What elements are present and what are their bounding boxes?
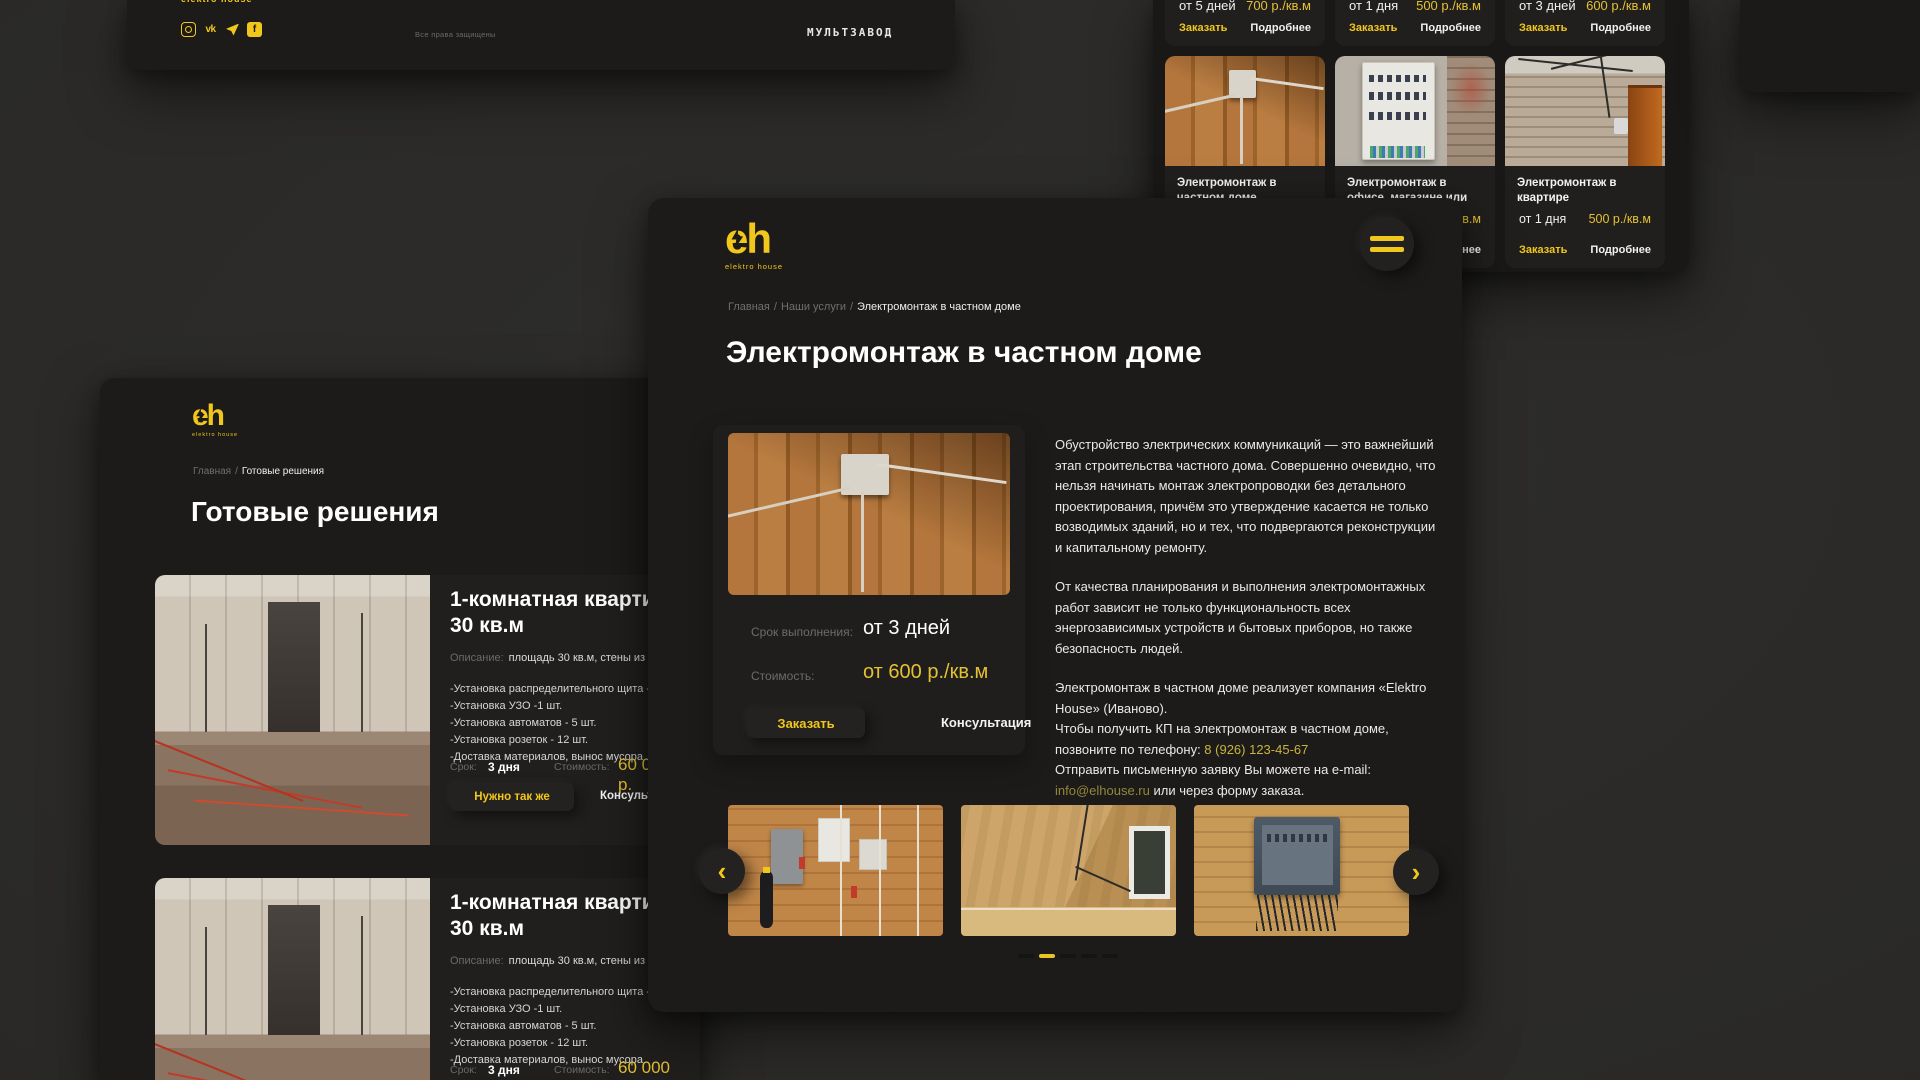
facebook-icon[interactable]: f xyxy=(247,22,262,37)
logo-mark: eh xyxy=(192,401,238,431)
breadcrumb: Главная/Готовые решения xyxy=(193,466,328,477)
consultation-button[interactable]: Консультация xyxy=(941,715,1031,730)
term-value: от 1 дня xyxy=(1519,212,1566,226)
wood-wall-equipment-photo[interactable] xyxy=(728,805,943,936)
solution-card: 1-комнатная квартира, 30 кв.м Описание:п… xyxy=(155,878,700,1080)
feature-item: -Установка распределительного щита - 1шт… xyxy=(450,984,675,1001)
breadcrumb: Главная/Наши услуги/Электромонтаж в част… xyxy=(728,301,1025,313)
breadcrumb-current: Готовые решения xyxy=(242,466,324,477)
price-label: Стоимость: xyxy=(554,1064,609,1076)
hamburger-menu-icon xyxy=(1370,236,1404,241)
logo-mark: eh xyxy=(725,218,783,260)
price-label: Стоимость: xyxy=(554,761,609,773)
price-value: 60 000 р. xyxy=(618,1058,680,1080)
carousel-dot[interactable] xyxy=(1018,954,1034,958)
price-value: 500 р./кв.м xyxy=(1416,0,1481,13)
logo-text: elektro house xyxy=(725,262,783,271)
carousel-dot[interactable] xyxy=(1102,954,1118,958)
page-title: Готовые решения xyxy=(191,496,439,528)
service-card: от 1 дня 500 р./кв.м Заказать Подробнее xyxy=(1335,0,1495,46)
feature-item: -Установка розеток - 12 шт. xyxy=(450,732,675,749)
order-button[interactable]: Заказать xyxy=(1519,244,1567,256)
term-value: 3 дня xyxy=(488,760,520,774)
lightning-bolt-icon xyxy=(195,408,206,423)
card-meta: Срок: 3 дня Стоимость: 60 000 р. xyxy=(450,1060,680,1080)
lightning-bolt-icon xyxy=(730,228,745,249)
breadcrumb-separator: / xyxy=(235,466,238,477)
description-label: Описание: xyxy=(450,955,504,967)
carousel-dot[interactable] xyxy=(1060,954,1076,958)
feature-list: -Установка распределительного щита - 1шт… xyxy=(450,681,675,766)
site-logo[interactable]: elektro house xyxy=(181,0,253,4)
service-page-frame: eh elektro house Главная/Наши услуги/Эле… xyxy=(648,198,1462,1012)
service-description: Обустройство электрических коммуникаций … xyxy=(1055,435,1437,821)
order-button[interactable]: Заказать xyxy=(1349,22,1397,34)
vk-icon[interactable]: vk xyxy=(203,22,218,37)
feature-list: -Установка распределительного щита - 1шт… xyxy=(450,984,675,1069)
email-link[interactable]: info@elhouse.ru xyxy=(1055,783,1150,798)
price-value: от 600 р./кв.м xyxy=(863,661,988,684)
carousel-dot[interactable] xyxy=(1081,954,1097,958)
copyright-text: Все права защищены xyxy=(415,30,496,39)
breadcrumb-root[interactable]: Главная xyxy=(193,466,231,477)
feature-item: -Установка УЗО -1 шт. xyxy=(450,1001,675,1018)
term-value: от 1 дня xyxy=(1349,0,1398,13)
service-card: Электромонтаж в квартире от 1 дня 500 р.… xyxy=(1505,56,1665,268)
more-button[interactable]: Подробнее xyxy=(1590,244,1651,256)
order-button[interactable]: Заказать xyxy=(747,708,865,738)
chevron-right-icon: › xyxy=(1412,859,1421,885)
footer-fragment-frame: elektro house vk f Все права защищены МУ… xyxy=(127,0,955,70)
price-value: 500 р./кв.м xyxy=(1589,212,1651,226)
more-button[interactable]: Подробнее xyxy=(1420,22,1481,34)
page-fragment xyxy=(1740,0,1920,92)
term-value: 3 дня xyxy=(488,1063,520,1077)
price-value: 600 р./кв.м xyxy=(1586,0,1651,13)
brick-room-door-photo[interactable] xyxy=(1505,56,1665,166)
wood-junction-box-photo xyxy=(728,433,1010,595)
service-card: от 3 дней 600 р./кв.м Заказать Подробнее xyxy=(1505,0,1665,46)
breadcrumb-separator: / xyxy=(774,301,777,313)
phone-link[interactable]: 8 (926) 123-45-67 xyxy=(1204,742,1308,757)
service-card: от 5 дней 700 р./кв.м Заказать Подробнее xyxy=(1165,0,1325,46)
solutions-page-frame: eh elektro house Главная/Готовые решения… xyxy=(100,378,700,1080)
need-same-button[interactable]: Нужно так же xyxy=(450,783,574,811)
term-value: от 3 дней xyxy=(1519,0,1576,13)
breadcrumb-root[interactable]: Главная xyxy=(728,301,770,313)
carousel-next-button[interactable]: › xyxy=(1393,849,1439,895)
feature-item: -Установка автоматов - 5 шт. xyxy=(450,1018,675,1035)
site-logo[interactable]: eh elektro house xyxy=(192,401,238,438)
paragraph: Электромонтаж в частном доме реализует к… xyxy=(1055,678,1437,801)
term-label: Срок: xyxy=(450,761,477,773)
feature-item: -Установка УЗО -1 шт. xyxy=(450,698,675,715)
more-button[interactable]: Подробнее xyxy=(1250,22,1311,34)
term-label: Срок: xyxy=(450,1064,477,1076)
telegram-icon[interactable] xyxy=(225,22,240,37)
feature-item: -Установка розеток - 12 шт. xyxy=(450,1035,675,1052)
price-value: 700 р./кв.м xyxy=(1246,0,1311,13)
card-meta: Срок: 3 дня Стоимость: 60 000 р. xyxy=(450,757,680,777)
breadcrumb-separator: / xyxy=(850,301,853,313)
paragraph: От качества планирования и выполнения эл… xyxy=(1055,577,1437,659)
feature-item: -Установка распределительного щита - 1шт… xyxy=(450,681,675,698)
design-canvas: elektro house vk f Все права защищены МУ… xyxy=(0,0,1920,1080)
description-label: Описание: xyxy=(450,652,504,664)
feature-item: -Установка автоматов - 5 шт. xyxy=(450,715,675,732)
renovated-room-photo xyxy=(155,575,430,845)
breadcrumb-section[interactable]: Наши услуги xyxy=(781,301,846,313)
carousel-dot-active[interactable] xyxy=(1039,954,1055,958)
wood-wall-cabinet-photo[interactable] xyxy=(1194,805,1409,936)
hamburger-menu-button[interactable] xyxy=(1360,217,1414,271)
order-button[interactable]: Заказать xyxy=(1179,22,1227,34)
page-title: Электромонтаж в частном доме xyxy=(726,336,1202,370)
chevron-left-icon: ‹ xyxy=(718,858,727,884)
more-button[interactable]: Подробнее xyxy=(1590,22,1651,34)
instagram-icon[interactable] xyxy=(181,22,196,37)
studio-logo[interactable]: МУЛЬТЗАВОД xyxy=(807,26,893,39)
term-value: от 5 дней xyxy=(1179,0,1236,13)
solution-card: 1-комнатная квартира, 30 кв.м Описание:п… xyxy=(155,575,700,845)
breadcrumb-current: Электромонтаж в частном доме xyxy=(857,301,1021,313)
carousel-prev-button[interactable]: ‹ xyxy=(699,848,745,894)
social-links: vk f xyxy=(181,22,262,37)
hamburger-menu-icon xyxy=(1370,247,1404,252)
paragraph: Обустройство электрических коммуникаций … xyxy=(1055,435,1437,558)
term-value: от 3 дней xyxy=(863,617,950,640)
site-logo[interactable]: eh elektro house xyxy=(725,218,783,271)
renovated-room-photo xyxy=(155,878,430,1080)
logo-text: elektro house xyxy=(192,432,238,438)
wood-junction-box-photo[interactable] xyxy=(1165,56,1325,166)
service-details-card: Срок выполнения: от 3 дней Стоимость: от… xyxy=(713,425,1025,755)
service-card-title: Электромонтаж в квартире xyxy=(1517,176,1655,206)
order-button[interactable]: Заказать xyxy=(1519,22,1567,34)
term-label: Срок выполнения: xyxy=(751,625,853,639)
breaker-panel-brick-photo[interactable] xyxy=(1335,56,1495,166)
carousel-pagination xyxy=(1018,954,1118,958)
wood-room-corner-photo[interactable] xyxy=(961,805,1176,936)
price-label: Стоимость: xyxy=(751,669,814,683)
